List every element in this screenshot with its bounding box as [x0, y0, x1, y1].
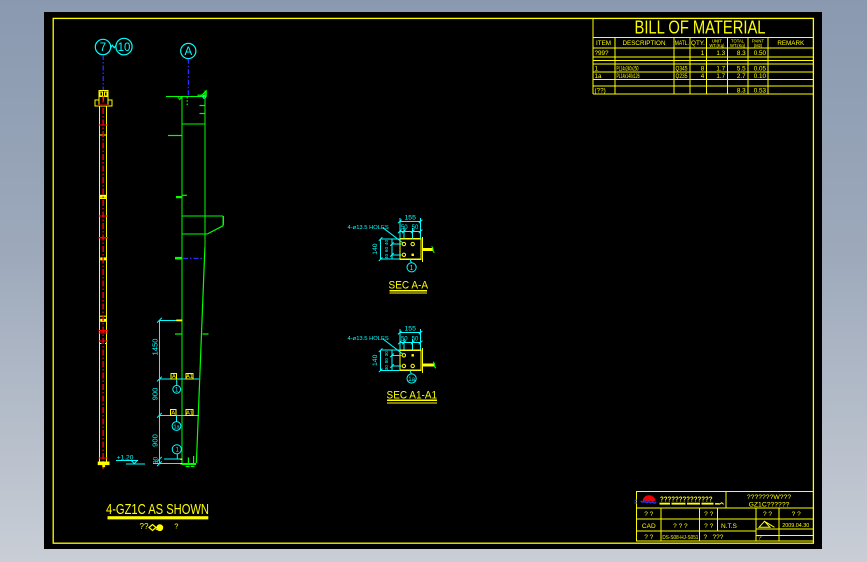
- svg-text:155: 155: [405, 214, 417, 221]
- svg-text:8.3: 8.3: [737, 50, 746, 57]
- svg-text:2.7: 2.7: [737, 73, 746, 80]
- svg-text:50: 50: [412, 225, 419, 231]
- svg-text:??: ??: [140, 522, 149, 531]
- svg-text:1.7: 1.7: [716, 73, 725, 80]
- svg-text:A: A: [184, 46, 192, 58]
- svg-text:4-ø13.5 HOLES: 4-ø13.5 HOLES: [348, 225, 389, 231]
- svg-text:MATL.: MATL.: [675, 40, 689, 47]
- svg-text:0.10: 0.10: [754, 73, 767, 80]
- svg-text:WT.(Kg): WT.(Kg): [709, 43, 725, 48]
- svg-text:SEC A1-A1: SEC A1-A1: [387, 389, 438, 401]
- svg-text:1a: 1a: [595, 73, 603, 80]
- svg-text:0.05: 0.05: [754, 66, 767, 73]
- svg-text:155: 155: [405, 326, 417, 333]
- svg-text:2009.04.30: 2009.04.30: [782, 523, 809, 529]
- svg-text:4-GZ1C AS SHOWN: 4-GZ1C AS SHOWN: [106, 501, 209, 518]
- svg-text:A: A: [172, 374, 176, 380]
- svg-text:50: 50: [401, 225, 408, 231]
- svg-text:?: ?: [758, 535, 762, 542]
- svg-text:? ?: ? ?: [704, 523, 713, 530]
- svg-text:CAD: CAD: [642, 523, 656, 530]
- svg-text:(M2): (M2): [754, 43, 763, 48]
- svg-text:0.53: 0.53: [754, 87, 767, 94]
- svg-text:Q235: Q235: [676, 73, 688, 80]
- svg-text:BILL OF MATERIAL: BILL OF MATERIAL: [635, 18, 766, 38]
- svg-text:8.3: 8.3: [737, 87, 746, 94]
- svg-text:QTY.: QTY.: [691, 40, 705, 47]
- svg-text:N.T.S: N.T.S: [721, 523, 738, 530]
- svg-text:? ? ?: ? ? ?: [673, 523, 688, 530]
- svg-text:60: 60: [384, 247, 389, 253]
- svg-text:? ?: ? ?: [644, 534, 653, 541]
- svg-text:1450: 1450: [151, 339, 160, 356]
- svg-text:1a: 1a: [173, 424, 180, 430]
- svg-text:30: 30: [384, 365, 389, 371]
- svg-text:(??): (??): [595, 87, 606, 94]
- svg-text:90: 90: [153, 457, 160, 465]
- svg-text:50: 50: [412, 336, 419, 342]
- svg-text:Q345: Q345: [676, 66, 688, 73]
- svg-text:40: 40: [384, 254, 389, 260]
- svg-text:PL14x140x126: PL14x140x126: [617, 73, 640, 80]
- svg-text:30: 30: [384, 351, 389, 357]
- svg-text:0.50: 0.50: [754, 50, 767, 57]
- svg-text:ITEM: ITEM: [596, 40, 611, 47]
- svg-text:4: 4: [701, 73, 705, 80]
- svg-text:GZ1C??????: GZ1C??????: [749, 502, 790, 509]
- svg-text:A1: A1: [186, 374, 193, 380]
- svg-text:80: 80: [384, 358, 389, 364]
- svg-text:A1: A1: [186, 411, 193, 417]
- svg-text:4-ø13.5 HOLES: 4-ø13.5 HOLES: [348, 336, 389, 342]
- svg-text:PL14x240x250: PL14x240x250: [617, 66, 639, 73]
- svg-text:?99?: ?99?: [595, 50, 610, 57]
- svg-text:7: 7: [100, 42, 106, 54]
- svg-text:? ???: ? ???: [704, 534, 724, 541]
- svg-text:40: 40: [384, 240, 389, 246]
- svg-text:1.7: 1.7: [716, 66, 725, 73]
- svg-text:? ?: ? ?: [644, 511, 653, 518]
- svg-text:WT.(Kg): WT.(Kg): [730, 43, 746, 48]
- svg-text:50: 50: [401, 336, 408, 342]
- svg-text:SEC A-A: SEC A-A: [389, 280, 429, 292]
- svg-text:??????????????: ??????????????: [660, 495, 713, 504]
- svg-text:8: 8: [701, 66, 705, 73]
- svg-text:10: 10: [118, 42, 131, 54]
- svg-text:REMARK: REMARK: [777, 40, 805, 47]
- svg-text:1.3: 1.3: [716, 50, 725, 57]
- svg-text:1a: 1a: [408, 377, 415, 383]
- svg-text:140: 140: [372, 243, 379, 255]
- svg-text:900: 900: [151, 434, 160, 447]
- svg-text:1: 1: [595, 66, 599, 73]
- svg-text:DESCRIPTION: DESCRIPTION: [622, 40, 665, 47]
- svg-text:140: 140: [372, 354, 379, 366]
- svg-text:?: ?: [174, 522, 178, 531]
- svg-text:1: 1: [701, 50, 705, 57]
- svg-text:? ?: ? ?: [763, 511, 772, 518]
- svg-text:900: 900: [151, 388, 160, 401]
- svg-text:? ?: ? ?: [792, 511, 801, 518]
- svg-text:5.5: 5.5: [737, 66, 746, 73]
- svg-text:1: 1: [410, 265, 414, 272]
- svg-text:A: A: [171, 411, 175, 417]
- svg-text:? ?: ? ?: [704, 511, 713, 518]
- svg-text:???????W???: ???????W???: [747, 494, 791, 501]
- svg-text:DS-S08-HJ-S051: DS-S08-HJ-S051: [662, 535, 698, 541]
